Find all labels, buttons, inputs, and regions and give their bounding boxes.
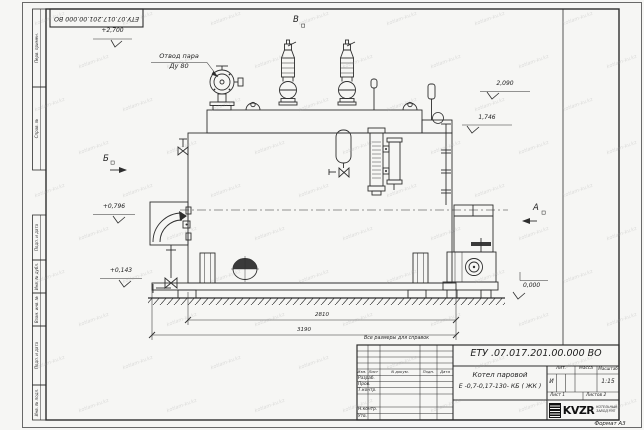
logo-sub-line2: ЗАВОД РЭП bbox=[596, 410, 617, 414]
section-mark-b: Б bbox=[103, 155, 109, 164]
titleblock-product-name-2: Е -0,7-0,17-130- КБ ( ЖК ) bbox=[453, 384, 547, 391]
elevation-right-lower: 1,746 bbox=[464, 115, 510, 122]
titleblock-row-nkontr: Н.контр. bbox=[358, 408, 377, 413]
titleblock-doc-number: ЕТУ .07.017.201.00.000 ВО bbox=[453, 349, 619, 359]
feedwater-unit bbox=[150, 139, 191, 293]
section-mark-v: В bbox=[293, 16, 299, 25]
elevation-top: +2,700 bbox=[93, 28, 132, 35]
safety-valve-right bbox=[338, 40, 356, 105]
titleblock-product-name-1: Котел паровой bbox=[453, 372, 547, 380]
doc-number-rotated: ЕТУ.07.017.201.00.000 ВО bbox=[50, 9, 143, 27]
titleblock-massa-header: Масса bbox=[575, 367, 597, 372]
burner-unit bbox=[441, 150, 498, 298]
titleblock-masshtab-header: Масштаб bbox=[597, 367, 619, 372]
titleblock-row-tkontr: Т.контр. bbox=[358, 389, 377, 394]
titleblock-header-izm: Изм. bbox=[358, 370, 368, 374]
titleblock-sheet-cell: Лист 1 bbox=[550, 394, 583, 399]
kvzr-logo-icon bbox=[549, 403, 561, 418]
callout-steam-line1: Отвод пара bbox=[150, 53, 208, 60]
level-gauge bbox=[368, 128, 402, 195]
titleblock-header-data: Дата bbox=[437, 370, 453, 374]
titleblock-header-podp: Подп. bbox=[420, 370, 437, 374]
sheet-label: Лист bbox=[550, 393, 561, 398]
boiler-body bbox=[152, 110, 508, 298]
margin-label-perv-primen: Перв. примен. bbox=[33, 9, 41, 87]
elevation-right-upper: 2,090 bbox=[482, 81, 528, 88]
sheet-frame bbox=[23, 3, 642, 428]
margin-label-inv-dubl: Инв. № дубл. bbox=[33, 260, 41, 293]
format-note: Формат А3 bbox=[584, 421, 636, 427]
elevation-left-upper: +0,796 bbox=[93, 204, 135, 211]
dimension-inner: 2810 bbox=[300, 312, 344, 318]
margin-label-podp-data-1: Подп. и дата bbox=[33, 215, 41, 260]
titleblock-row-prov: Пров. bbox=[358, 383, 371, 388]
margin-label-sprav-no: Справ. № bbox=[33, 87, 41, 170]
sheet-value: 1 bbox=[562, 393, 565, 398]
drawing-sheet: kotlam-kv.kzkotlam-kv.kzkotlam-kv.kzkotl… bbox=[0, 0, 644, 430]
section-mark-a: А bbox=[533, 204, 539, 213]
separator-vessel bbox=[329, 130, 351, 177]
ground-line bbox=[148, 298, 505, 305]
margin-label-vzam-inv: Взам. инв. № bbox=[33, 293, 41, 326]
dimension-overall: 3190 bbox=[282, 327, 326, 333]
titleblock-lit-value: И bbox=[547, 379, 556, 386]
titleblock-row-utv: Утв. bbox=[358, 415, 367, 420]
titleblock-scale-value: 1:15 bbox=[597, 379, 619, 386]
company-logo: KVZR КОТЕЛЬНЫЙ ЗАВОД РЭП bbox=[549, 401, 617, 419]
elevation-left-lower: +0,143 bbox=[100, 268, 142, 275]
kvzr-logo-text: KVZR bbox=[563, 404, 594, 417]
titleblock-sheets-cell: Листов 2 bbox=[586, 394, 619, 399]
titleblock-lit-header: Лит. bbox=[547, 367, 575, 372]
reference-note: Все размеры для справок bbox=[364, 336, 428, 341]
margin-label-podp-data-2: Подп. и дата bbox=[33, 326, 41, 385]
titleblock-row-razrab: Разраб. bbox=[358, 377, 375, 382]
titleblock-header-list: Лист bbox=[369, 370, 380, 374]
margin-label-inv-podl: Инв. № подл. bbox=[33, 385, 41, 420]
lifting-lugs bbox=[246, 102, 417, 110]
sheets-label: Листов bbox=[586, 393, 602, 398]
sheets-value: 2 bbox=[603, 393, 606, 398]
callout-steam-line2: Ду 80 bbox=[150, 63, 208, 70]
safety-valve-left bbox=[279, 40, 297, 105]
elevation-ground: 0,000 bbox=[523, 283, 540, 290]
titleblock-header-ndokum: N докум. bbox=[380, 370, 420, 374]
boiler-general-view-drawing bbox=[0, 0, 644, 430]
elevation-marks bbox=[93, 39, 548, 299]
